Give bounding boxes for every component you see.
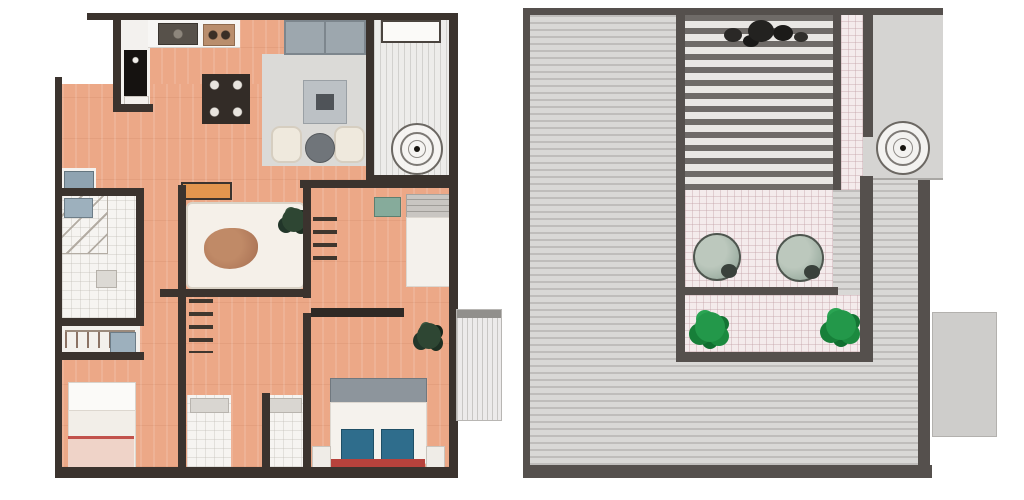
tall-black-appliance [124,50,147,96]
wall-segment [676,15,685,362]
curtain-rod [311,308,404,317]
wall-segment [113,104,153,112]
wall-segment [523,465,932,478]
compass-rose-icon [876,121,930,175]
wall-segment [55,352,144,360]
compass-center [900,145,906,151]
wall-segment [863,15,873,137]
wall-segment [833,15,841,190]
wall-segment [366,19,374,182]
floor-plan-sheet [0,0,1024,500]
gray-sofa [284,20,366,55]
ladder-shelf [313,217,337,269]
bed-body-mid [406,217,451,287]
master-headboard [330,378,427,404]
round-side-table [305,133,335,163]
laundry-basket [110,332,136,354]
orange-cabinet [181,182,232,200]
wall-segment [300,180,458,188]
shrub-left [695,312,725,342]
fixture-b [268,398,302,413]
kitchen-sink [158,23,198,45]
wall-segment [55,77,62,475]
tile-walkway [841,15,863,190]
blue-pillow-right [381,429,414,463]
wall-segment [303,180,311,298]
armchair-left [271,126,302,163]
bed-headboard-mid [406,194,451,219]
wall-segment [860,176,873,360]
wall-segment [55,318,144,326]
bathroom-sink [96,270,117,288]
fixture-a [190,398,229,413]
wall-segment [113,13,121,112]
exterior-ledge [457,310,501,420]
compass-center [414,146,420,152]
wall-segment [262,393,270,475]
bed-end-runner [330,459,425,467]
wall-segment [303,313,311,475]
closet-shelving [189,299,213,353]
shrub-right [826,310,856,340]
single-bed-blanket [68,436,134,468]
green-bench [374,197,401,217]
lounge-chair-right [776,234,824,282]
single-bed-pillow [68,382,136,412]
compass-rose-icon [391,123,443,175]
blue-pillow-left [341,429,374,463]
apartment-floor-plan [55,8,460,478]
wall-segment [918,180,930,478]
wall-segment [682,287,838,295]
wall-segment [523,8,530,478]
roof-terrace-plan [523,8,1003,478]
roof-extension-slab [932,312,997,437]
wall-segment [178,185,186,298]
wall-segment [55,467,458,478]
wall-segment [87,13,458,20]
wall-segment [523,8,943,15]
wall-segment [136,196,144,322]
washing-machine [64,198,93,218]
wall-segment [55,188,144,196]
lounge-chair-left [693,233,741,281]
wall-segment [178,289,186,475]
wall-segment [678,352,873,362]
balcony-planter-box [381,20,441,43]
pergola-planting [748,20,774,42]
dining-table [202,74,250,124]
table-decor [316,94,334,110]
dark-plant-icon [417,323,441,349]
cooktop [203,24,235,46]
armchair-right [334,126,365,163]
